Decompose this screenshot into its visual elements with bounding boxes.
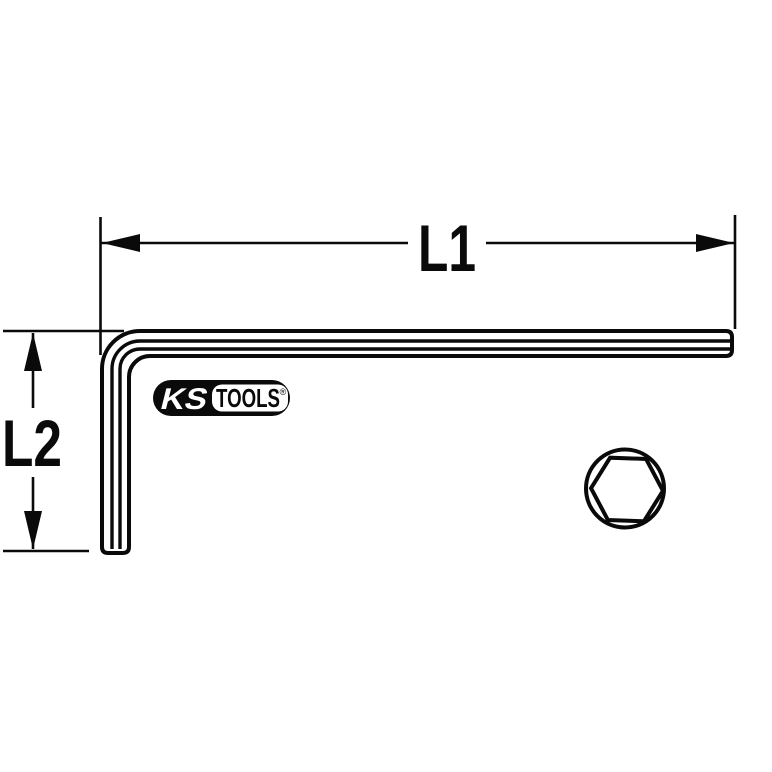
ks-tools-logo: KS TOOLS ® [153,380,290,416]
l1-arrow-right-icon [696,234,734,252]
l2-dimension-label: L2 [2,406,62,480]
l1-dimension-label: L1 [418,211,476,285]
logo-name-text: TOOLS [216,383,280,413]
l2-arrow-down-icon [24,511,42,549]
hex-key-diagram: L1 L2 KS TOOLS ® [0,0,772,772]
logo-registered-mark: ® [280,387,287,397]
l1-arrow-left-icon [102,234,140,252]
cross-section-group [586,450,664,528]
logo-brand-text: KS [157,382,211,415]
technical-drawing-canvas: L1 L2 KS TOOLS ® [0,0,772,772]
l2-arrow-up-icon [24,333,42,371]
